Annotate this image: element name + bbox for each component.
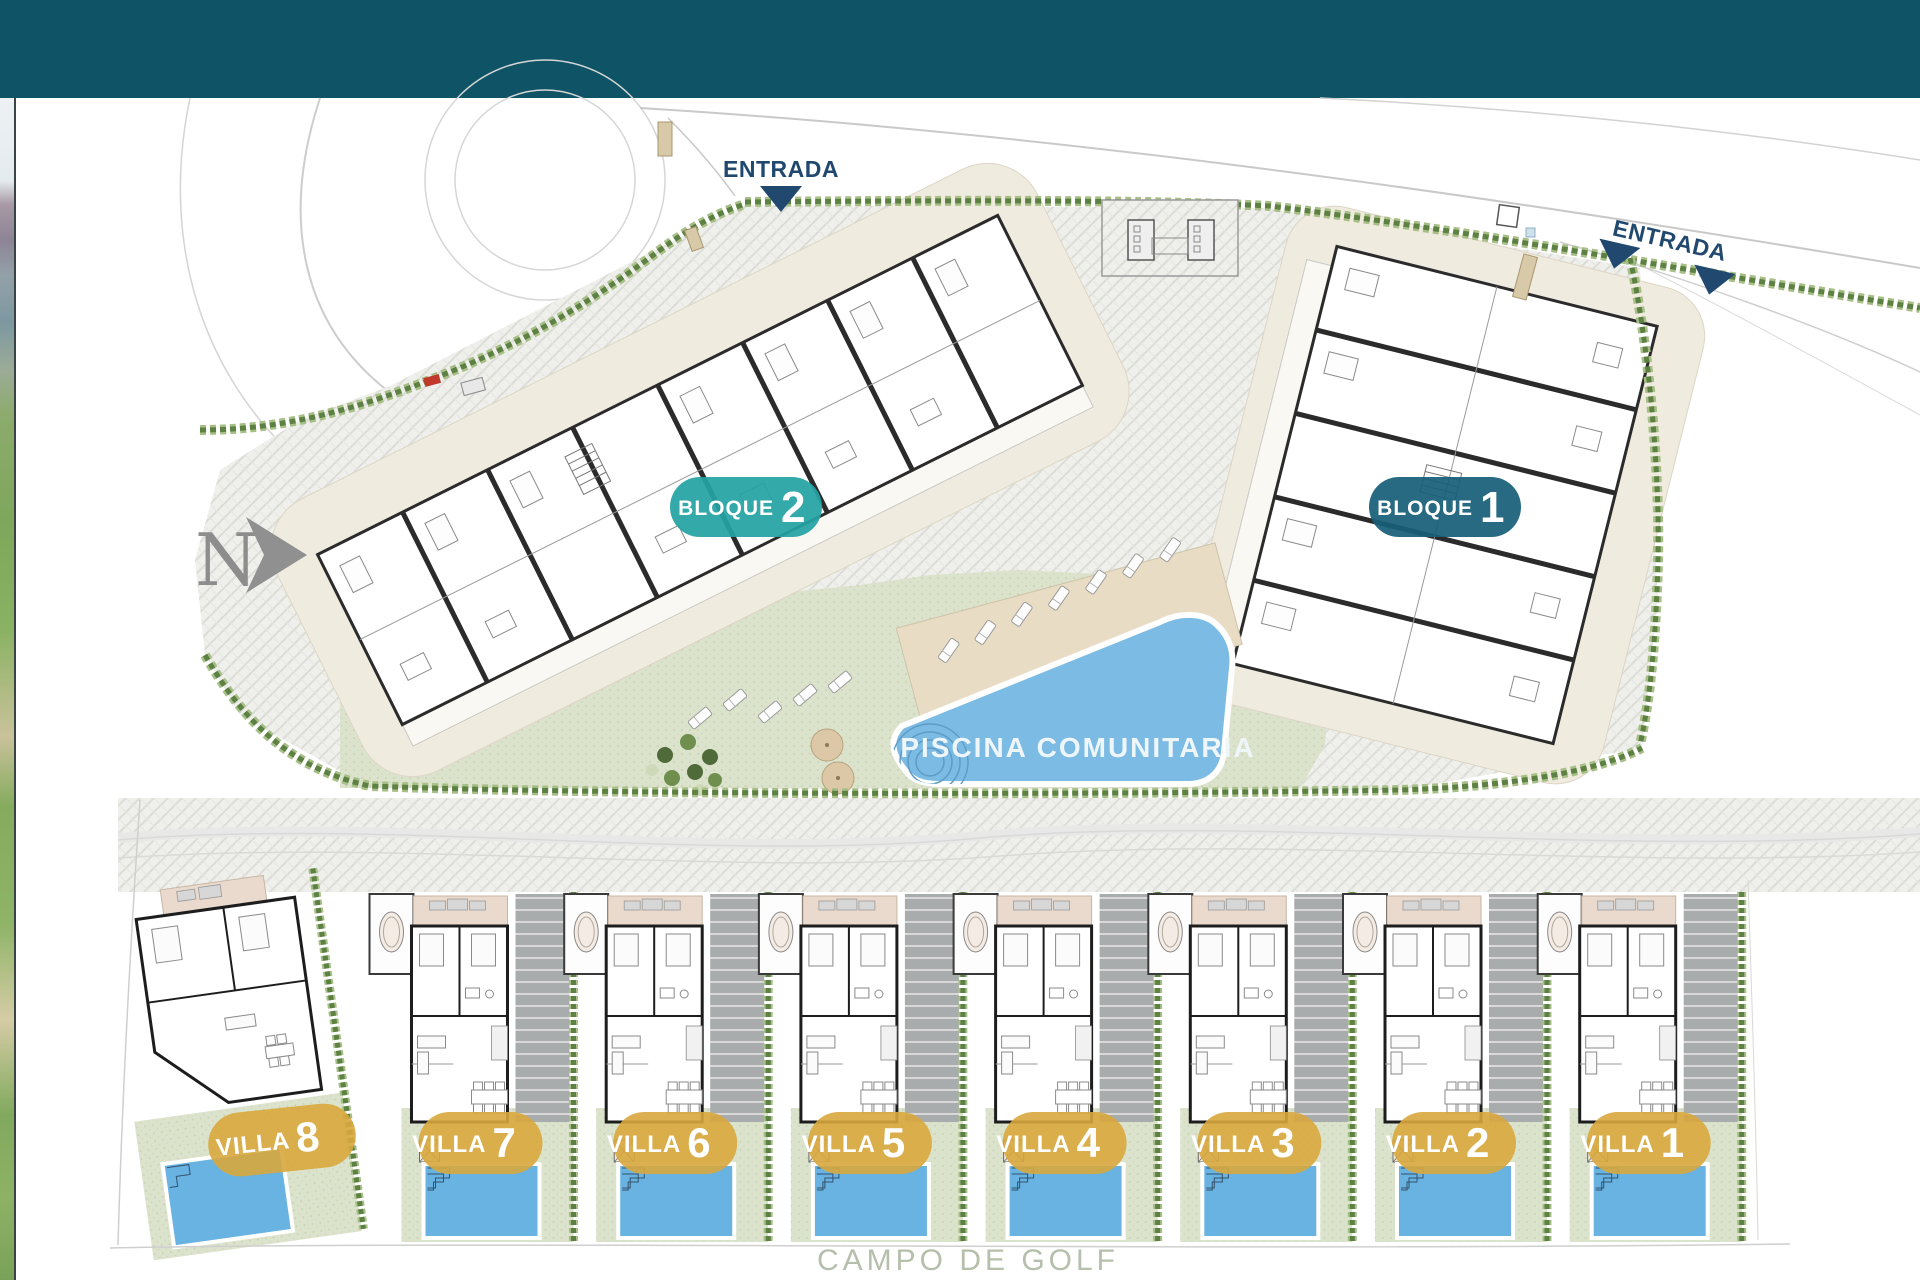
villa-7-badge[interactable]: VILLA 7 [412,1112,542,1174]
villa-5-number: 5 [882,1119,905,1166]
bloque-1-badge[interactable]: BLOQUE 1 [1369,477,1521,537]
bloque-1-number: 1 [1480,483,1504,532]
bloque-1-name: BLOQUE [1377,497,1473,520]
villa-3-badge[interactable]: VILLA 3 [1191,1112,1321,1174]
villa-7-number: 7 [493,1119,516,1166]
golf-course-label: CAMPO DE GOLF [817,1244,1119,1277]
villa-2-badge[interactable]: VILLA 2 [1386,1112,1516,1174]
villa-plot-6 [564,892,768,1242]
villa-1-number: 1 [1661,1119,1684,1166]
villa-7-name: VILLA [412,1131,486,1158]
utility-marker [1526,228,1535,237]
central-road-band [118,798,1920,892]
entrance-2-label: ENTRADA [1610,214,1729,265]
villa-plot-1 [1538,892,1742,1242]
villa-1-badge[interactable]: VILLA 1 [1580,1112,1710,1174]
pool-label: PISCINA COMUNITARIA [900,732,1255,763]
villa-4-badge[interactable]: VILLA 4 [996,1112,1126,1174]
villa-4-name: VILLA [996,1131,1070,1158]
villa-3-name: VILLA [1191,1131,1265,1158]
villa-plot-5 [759,892,963,1242]
villa-5-badge[interactable]: VILLA 5 [802,1112,932,1174]
villas-row [103,868,1742,1260]
villa-3-number: 3 [1271,1119,1294,1166]
villa-plot-3 [1148,892,1352,1242]
bloque-2-badge[interactable]: BLOQUE 2 [670,477,822,537]
villa-8-number: 8 [293,1112,321,1161]
villa-plot-2 [1343,892,1547,1242]
siteplan-page: N ENTRADA ENTRADA PISCINA COMUNITARIA BL… [0,0,1920,1280]
villa-6-number: 6 [687,1119,710,1166]
villa-plot-7 [370,892,574,1242]
villa-plot-8 [103,868,364,1260]
utility-box [1497,205,1520,228]
bloque-2-number: 2 [781,483,805,532]
villa-6-badge[interactable]: VILLA 6 [607,1112,737,1174]
gate-pillar [658,122,672,156]
villa-4-number: 4 [1077,1119,1101,1166]
villa-6-name: VILLA [607,1131,681,1158]
villa-5-name: VILLA [802,1131,876,1158]
entrance-1-label: ENTRADA [723,156,839,182]
villa-1-name: VILLA [1580,1131,1654,1158]
villa-2-name: VILLA [1386,1131,1460,1158]
siteplan-drawing: N ENTRADA ENTRADA PISCINA COMUNITARIA BL… [0,0,1920,1280]
villa-plot-4 [954,892,1158,1242]
bloque-2-name: BLOQUE [678,497,774,520]
villa-2-number: 2 [1466,1119,1489,1166]
